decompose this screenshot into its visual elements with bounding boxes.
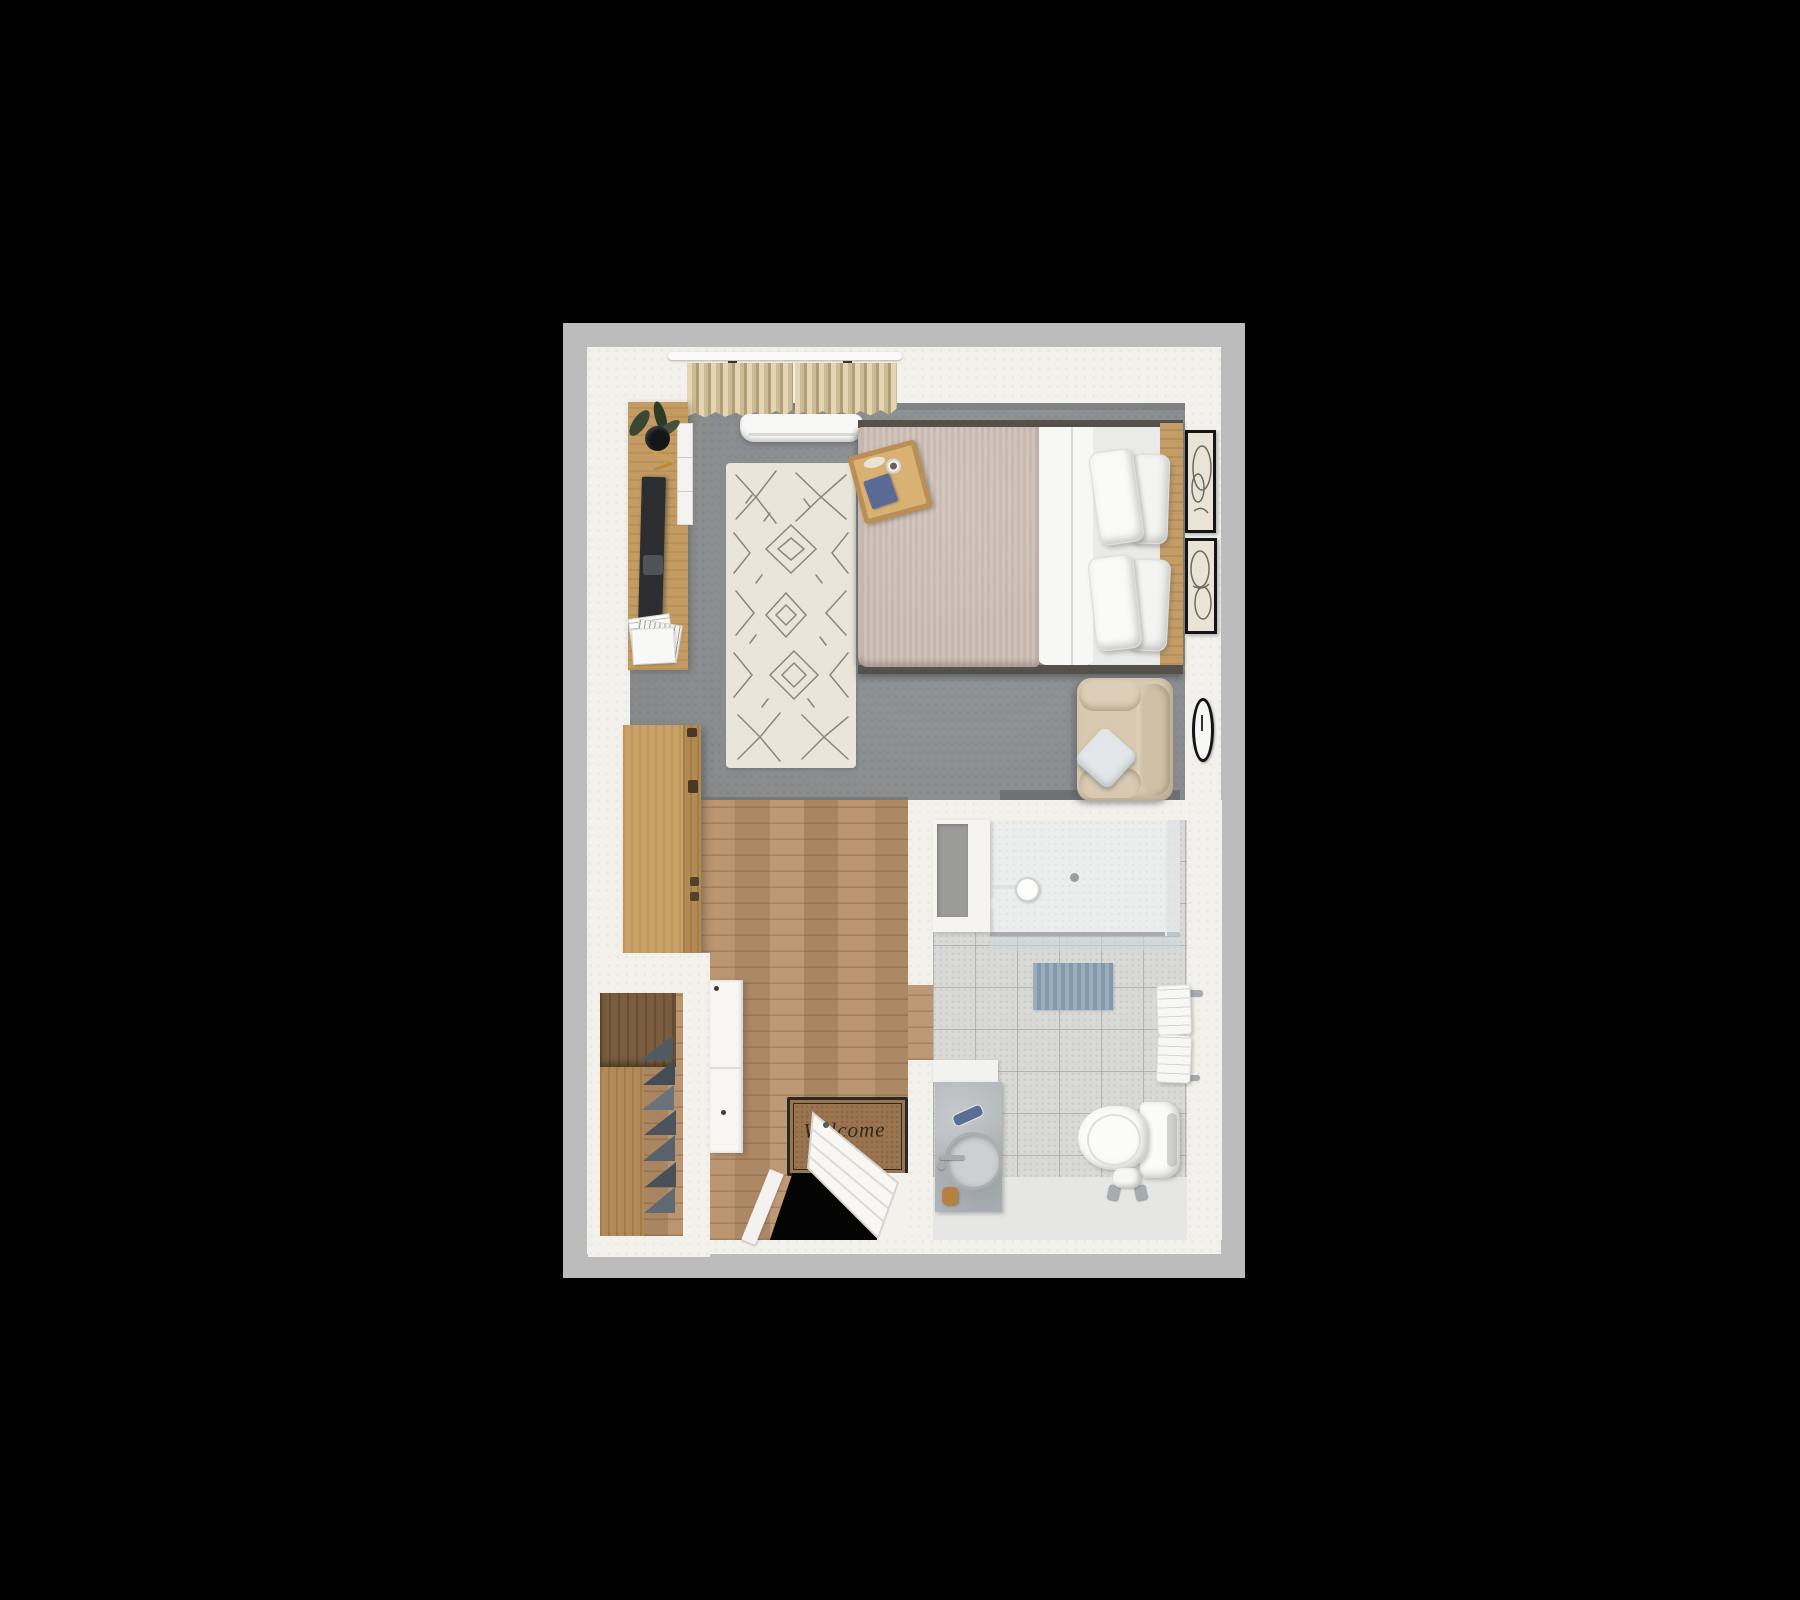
entry-door <box>563 323 1245 1278</box>
scene-background: Welcome <box>0 0 1800 1600</box>
floor-plan: Welcome <box>563 323 1245 1278</box>
